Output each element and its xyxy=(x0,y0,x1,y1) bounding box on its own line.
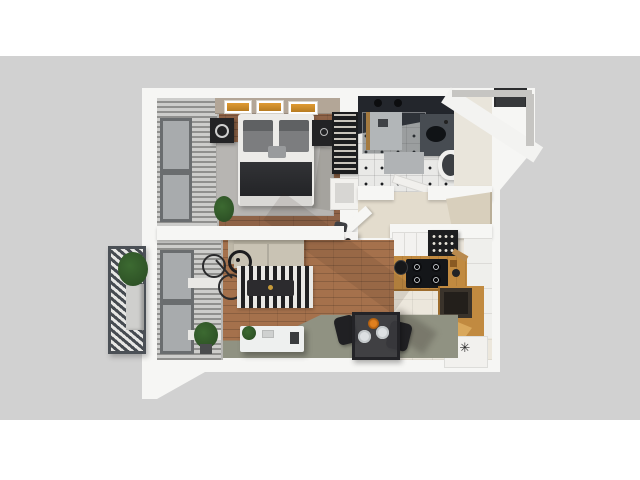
cooktop xyxy=(406,259,448,288)
nightstand-speaker xyxy=(210,118,234,143)
bench-plant xyxy=(242,326,256,340)
bedroom-plant xyxy=(214,196,234,222)
orange-centerpiece xyxy=(368,318,379,329)
kettle xyxy=(394,260,408,275)
plate xyxy=(358,330,371,343)
sink-basin xyxy=(426,126,446,142)
washstand xyxy=(366,112,402,150)
screenshot-stage: ✳ xyxy=(0,0,640,480)
wall-picture xyxy=(288,101,318,115)
entry-niche-inner xyxy=(496,97,525,107)
pot xyxy=(452,269,460,277)
shower-head xyxy=(374,99,382,107)
window-sill xyxy=(188,278,221,288)
living-window xyxy=(160,302,194,354)
shower-head xyxy=(394,99,402,107)
bench-item xyxy=(262,330,274,338)
interior-wall xyxy=(358,186,394,200)
storage-box-inner xyxy=(335,183,354,203)
speaker xyxy=(290,332,299,344)
bed-throw-blanket xyxy=(240,162,312,196)
balcony-plant xyxy=(118,252,148,286)
wall-picture xyxy=(224,100,252,114)
jar xyxy=(450,260,457,267)
oven xyxy=(440,288,472,318)
wall-top-face xyxy=(452,90,532,97)
ventilation-fan-icon: ✳ xyxy=(456,340,474,358)
plate xyxy=(376,326,389,339)
coffee-table xyxy=(247,280,294,296)
wall-picture xyxy=(256,100,284,114)
bedroom-window xyxy=(160,118,192,172)
bedroom-window xyxy=(160,172,192,222)
living-window xyxy=(160,250,194,302)
faucet xyxy=(444,120,448,124)
fridge-cabinet xyxy=(392,232,430,259)
balcony-planter xyxy=(126,284,144,330)
shelf-rack xyxy=(332,112,358,174)
bath-mat xyxy=(384,152,424,174)
plant-pot xyxy=(200,344,212,354)
interior-wall xyxy=(157,226,344,240)
wall-top-face xyxy=(526,94,534,146)
bed-cushion xyxy=(268,146,286,158)
